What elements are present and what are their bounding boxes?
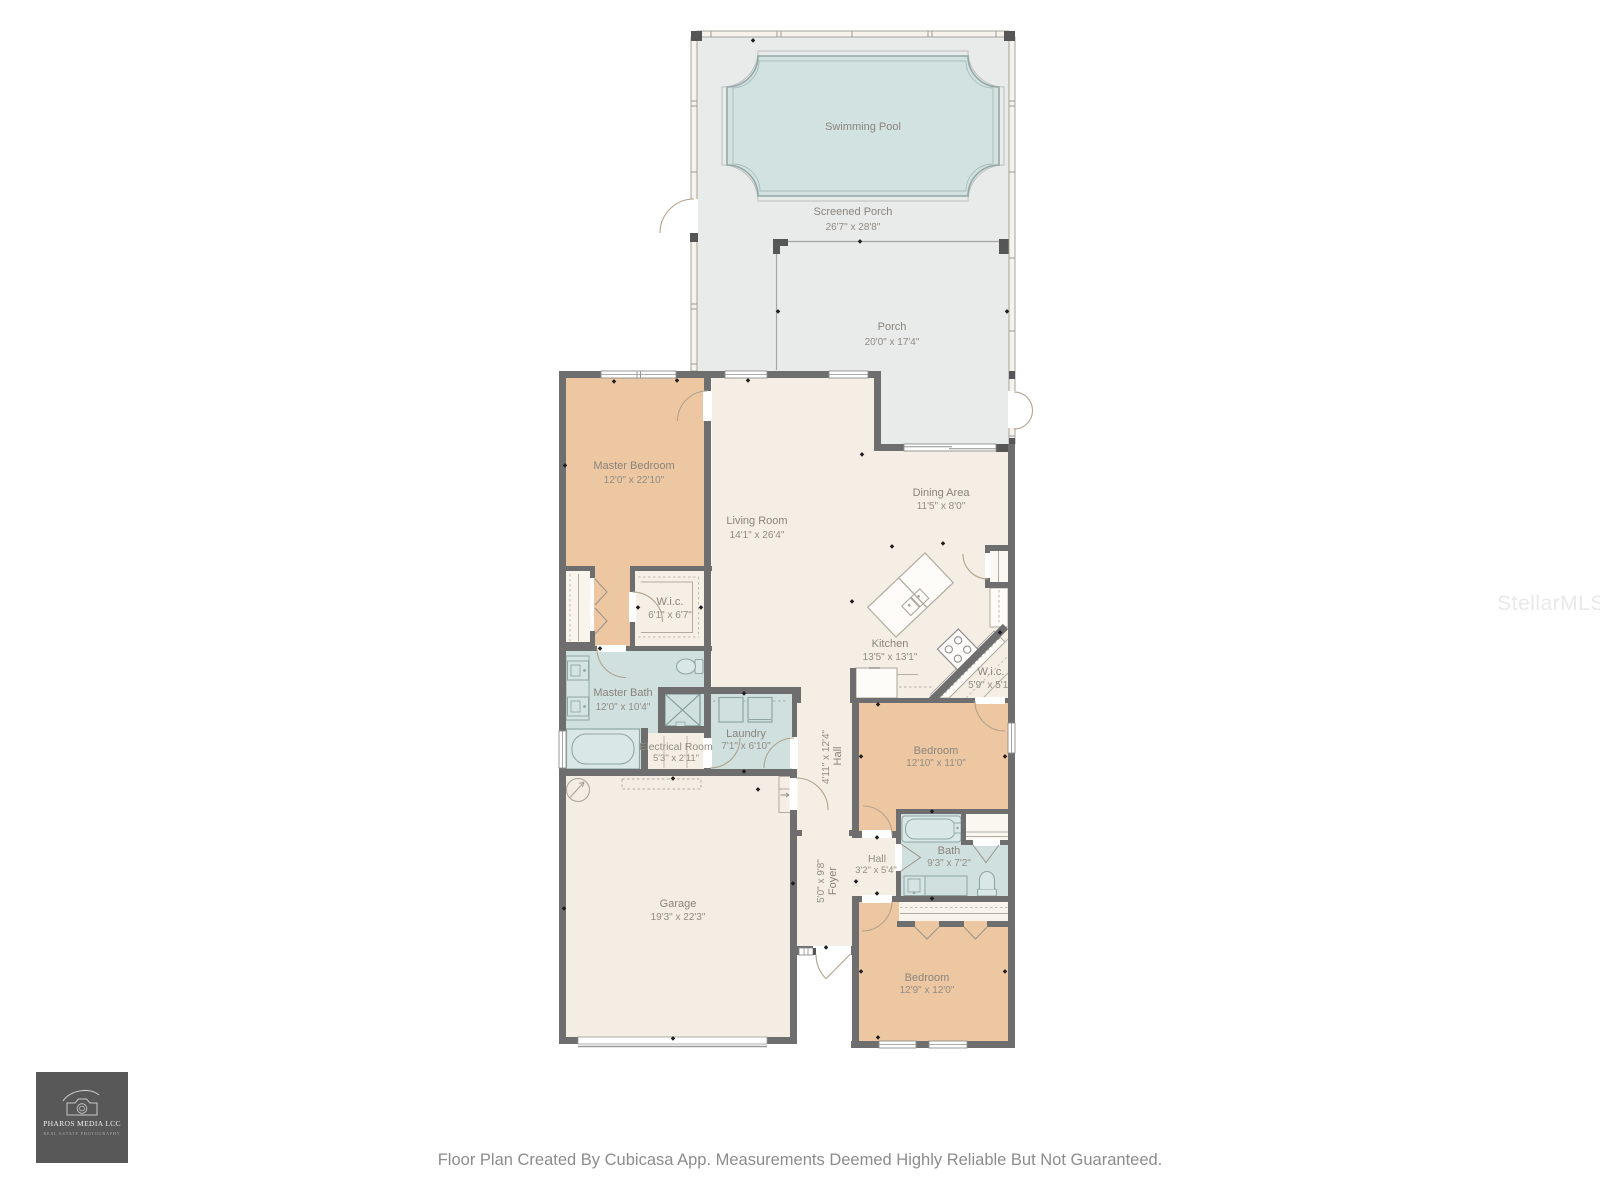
svg-text:StellarMLS: StellarMLS bbox=[1497, 592, 1600, 615]
svg-text:Laundry: Laundry bbox=[726, 728, 766, 740]
svg-text:4'11" x 12'4": 4'11" x 12'4" bbox=[821, 730, 832, 785]
svg-text:Master Bath: Master Bath bbox=[593, 687, 652, 699]
svg-text:12'10" x 11'0": 12'10" x 11'0" bbox=[906, 758, 966, 769]
svg-text:Hall: Hall bbox=[868, 853, 886, 865]
svg-text:12'0" x 10'4": 12'0" x 10'4" bbox=[596, 702, 651, 713]
svg-text:Garage: Garage bbox=[660, 898, 697, 910]
svg-text:9'3" x 7'2": 9'3" x 7'2" bbox=[927, 858, 971, 869]
svg-text:W.i.c.: W.i.c. bbox=[657, 596, 684, 608]
svg-text:W.i.c.: W.i.c. bbox=[978, 666, 1005, 678]
svg-text:Hall: Hall bbox=[832, 747, 844, 766]
svg-text:13'5" x 13'1": 13'5" x 13'1" bbox=[863, 652, 918, 663]
svg-text:12'9" x 12'0": 12'9" x 12'0" bbox=[900, 985, 955, 996]
svg-text:Screened Porch: Screened Porch bbox=[814, 206, 893, 218]
svg-text:REAL ESTATE PHOTOGRAPHY: REAL ESTATE PHOTOGRAPHY bbox=[43, 1131, 120, 1136]
svg-text:Master Bedroom: Master Bedroom bbox=[593, 460, 674, 472]
svg-text:Floor Plan Created By Cubicasa: Floor Plan Created By Cubicasa App. Meas… bbox=[438, 1151, 1163, 1169]
svg-text:Dining Area: Dining Area bbox=[913, 487, 971, 499]
svg-text:Bath: Bath bbox=[938, 845, 961, 857]
svg-text:Bedroom: Bedroom bbox=[914, 745, 959, 757]
svg-text:Living Room: Living Room bbox=[726, 515, 787, 527]
svg-text:Foyer: Foyer bbox=[827, 867, 839, 895]
svg-text:19'3" x 22'3": 19'3" x 22'3" bbox=[651, 912, 706, 923]
svg-text:26'7" x 28'8": 26'7" x 28'8" bbox=[826, 222, 881, 233]
svg-text:20'0" x 17'4": 20'0" x 17'4" bbox=[865, 337, 920, 348]
svg-text:3'2" x 5'4": 3'2" x 5'4" bbox=[855, 865, 897, 876]
svg-text:12'0" x 22'10": 12'0" x 22'10" bbox=[604, 475, 665, 486]
svg-text:Kitchen: Kitchen bbox=[872, 638, 909, 650]
svg-text:Porch: Porch bbox=[878, 321, 907, 333]
svg-text:5'3" x 2'11": 5'3" x 2'11" bbox=[653, 753, 699, 764]
svg-text:5'9" x 5'1": 5'9" x 5'1" bbox=[968, 680, 1012, 691]
svg-text:Bedroom: Bedroom bbox=[905, 972, 950, 984]
svg-text:5'0" x 9'8": 5'0" x 9'8" bbox=[816, 859, 827, 903]
svg-text:11'5" x 8'0": 11'5" x 8'0" bbox=[917, 501, 966, 512]
svg-text:6'1" x 6'7": 6'1" x 6'7" bbox=[648, 610, 692, 621]
svg-text:7'1" x 6'10": 7'1" x 6'10" bbox=[721, 741, 771, 752]
svg-text:PHAROS MEDIA LCC: PHAROS MEDIA LCC bbox=[43, 1119, 121, 1128]
svg-text:Swimming Pool: Swimming Pool bbox=[825, 121, 901, 133]
svg-text:Electrical Room: Electrical Room bbox=[639, 741, 713, 753]
svg-text:14'1" x 26'4": 14'1" x 26'4" bbox=[730, 530, 785, 541]
